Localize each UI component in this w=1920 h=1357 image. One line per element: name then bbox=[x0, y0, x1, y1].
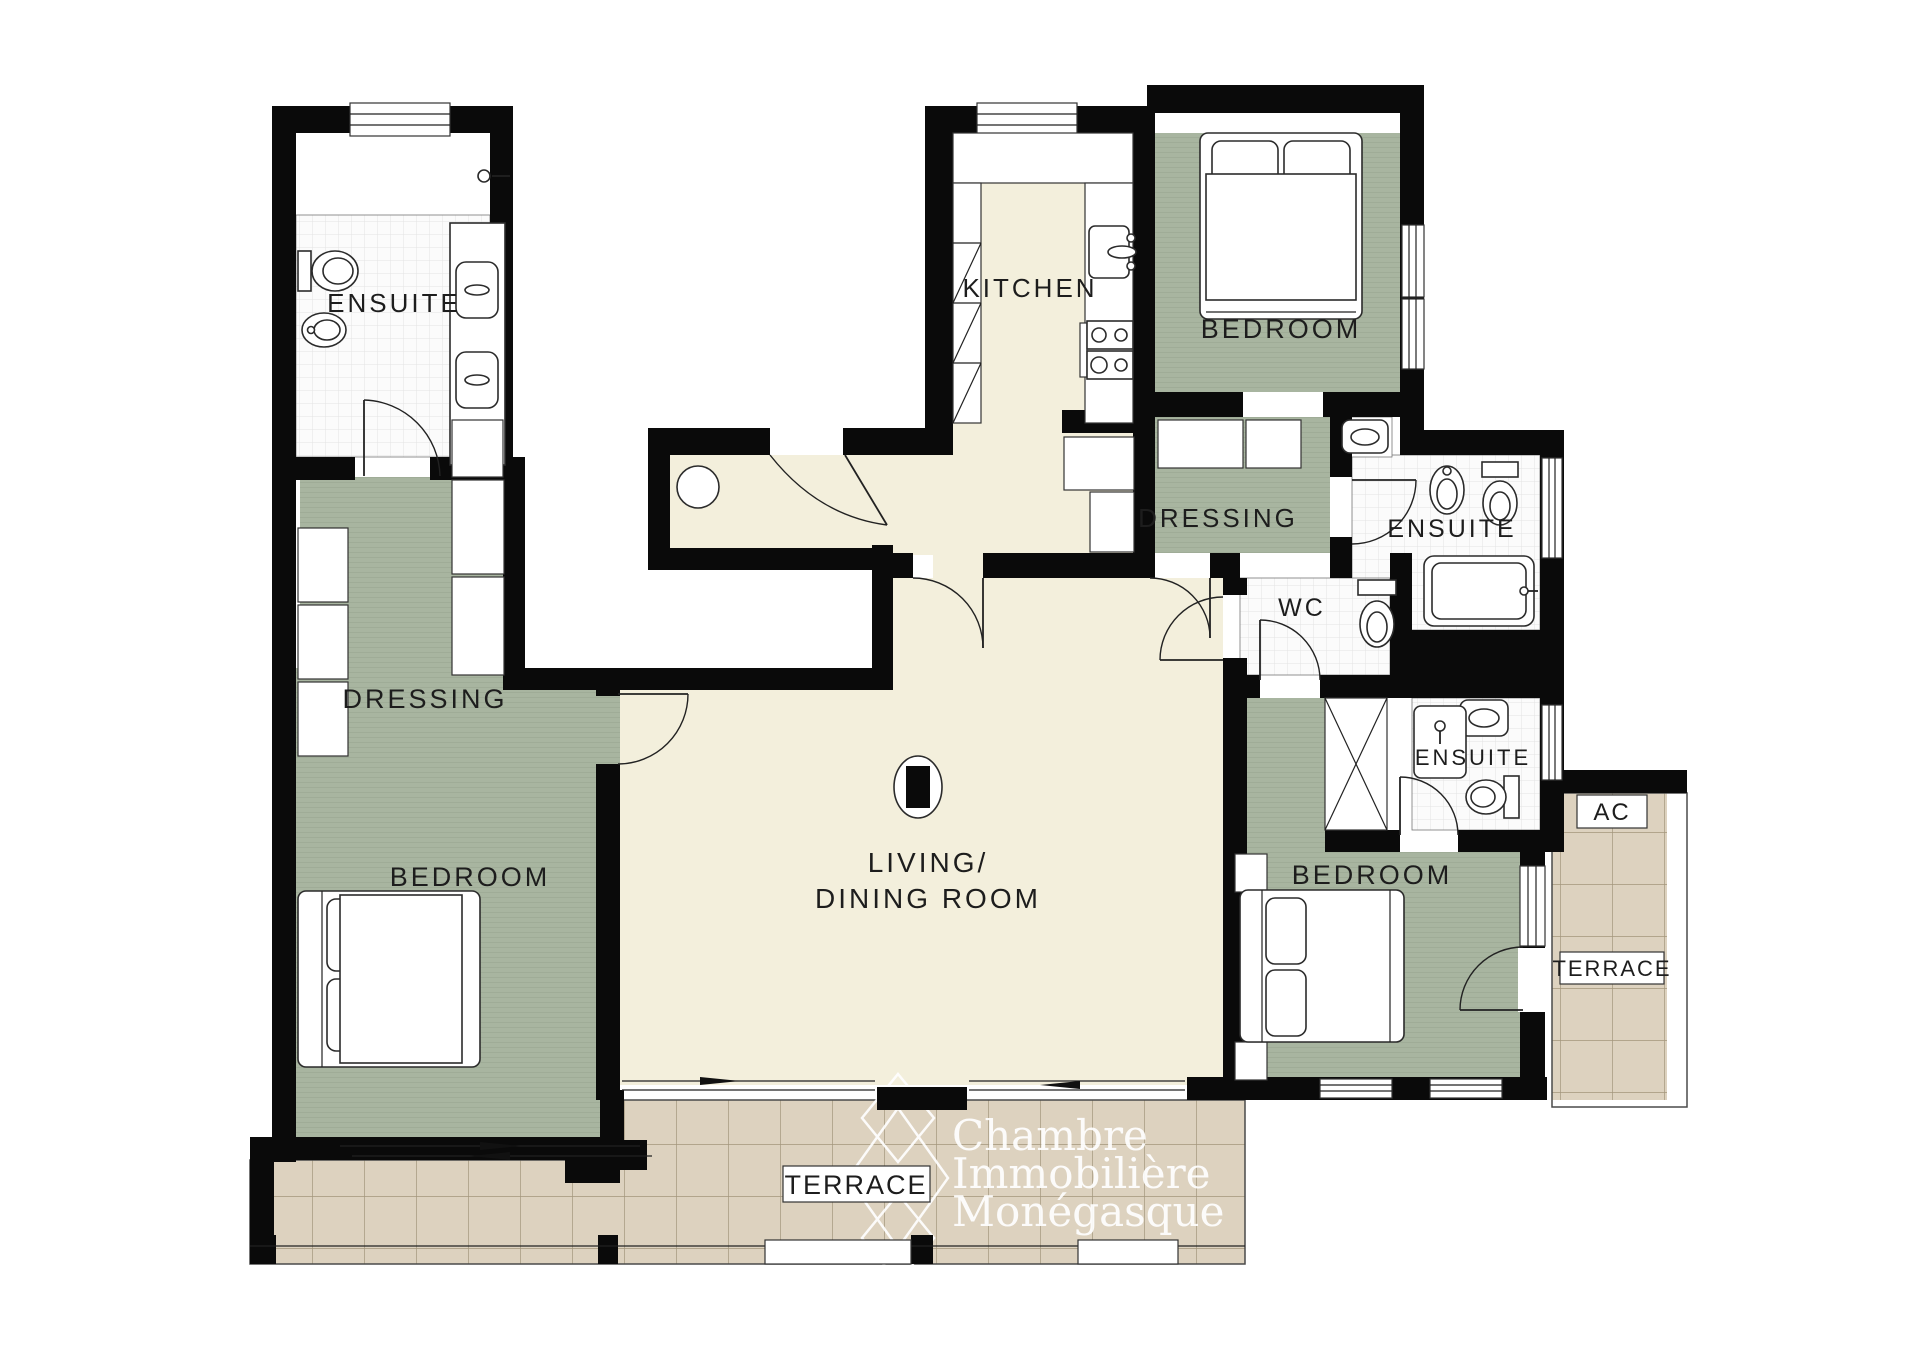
toilet-ensuite-topleft bbox=[298, 251, 358, 291]
floor-plan: Chambre Immobilière Monégasque bbox=[0, 0, 1920, 1357]
label-wc: WC bbox=[1278, 594, 1326, 622]
label-ensuite-topleft: ENSUITE bbox=[327, 288, 461, 318]
label-living-line1: LIVING/ bbox=[868, 847, 989, 878]
toilet-wc bbox=[1358, 580, 1396, 647]
corridor-closet-1 bbox=[1064, 437, 1134, 490]
wardrobe-bottomright bbox=[1325, 698, 1387, 830]
terrace-door-gap bbox=[1518, 948, 1547, 1012]
fireplace-icon bbox=[894, 756, 942, 818]
label-kitchen: KITCHEN bbox=[962, 273, 1097, 303]
window-kitchen bbox=[977, 103, 1077, 136]
corridor-closet-2 bbox=[1090, 492, 1134, 552]
window-bedroom-topright-1 bbox=[1402, 225, 1424, 297]
window-ensuite-topleft bbox=[350, 103, 450, 136]
label-living-line2: DINING ROOM bbox=[815, 883, 1041, 914]
bidet-ensuite-right bbox=[1430, 466, 1464, 514]
entry-round-table bbox=[677, 466, 719, 508]
label-bedroom-left: BEDROOM bbox=[390, 862, 551, 892]
sink-ensuite-bottomright bbox=[1460, 700, 1508, 736]
sink-nook bbox=[1342, 420, 1388, 453]
label-ensuite-right: ENSUITE bbox=[1387, 515, 1516, 543]
window-bedroom-bottomright-east bbox=[1520, 866, 1545, 946]
window-ensuite-bottomright bbox=[1542, 705, 1562, 780]
window-bedroom-bottomright-south-1 bbox=[1320, 1079, 1392, 1098]
bathtub-ensuite-right bbox=[1424, 556, 1538, 626]
label-terrace-bottom: TERRACE bbox=[784, 1170, 927, 1200]
vestibule-floor bbox=[893, 578, 1223, 694]
label-terrace-right: TERRACE bbox=[1552, 956, 1671, 981]
window-ensuite-right bbox=[1542, 458, 1562, 558]
label-ensuite-bottomright: ENSUITE bbox=[1415, 745, 1531, 770]
dressing-right-closets bbox=[1158, 420, 1301, 468]
window-bedroom-topright-2 bbox=[1402, 299, 1424, 369]
watermark-line3: Monégasque bbox=[952, 1187, 1224, 1236]
kitchen-sink bbox=[1089, 226, 1136, 278]
window-bedroom-bottomright-south-2 bbox=[1430, 1079, 1502, 1098]
label-dressing-right: DRESSING bbox=[1138, 503, 1298, 533]
label-bedroom-bottomright: BEDROOM bbox=[1292, 860, 1453, 890]
terrace-right-floor bbox=[1552, 793, 1667, 1100]
bidet-ensuite-topleft bbox=[302, 313, 346, 347]
bed-topright bbox=[1200, 133, 1362, 319]
bed-left bbox=[298, 891, 480, 1067]
label-ac: AC bbox=[1593, 799, 1630, 826]
label-dressing-left: DRESSING bbox=[342, 684, 507, 714]
label-bedroom-topright: BEDROOM bbox=[1201, 314, 1362, 344]
